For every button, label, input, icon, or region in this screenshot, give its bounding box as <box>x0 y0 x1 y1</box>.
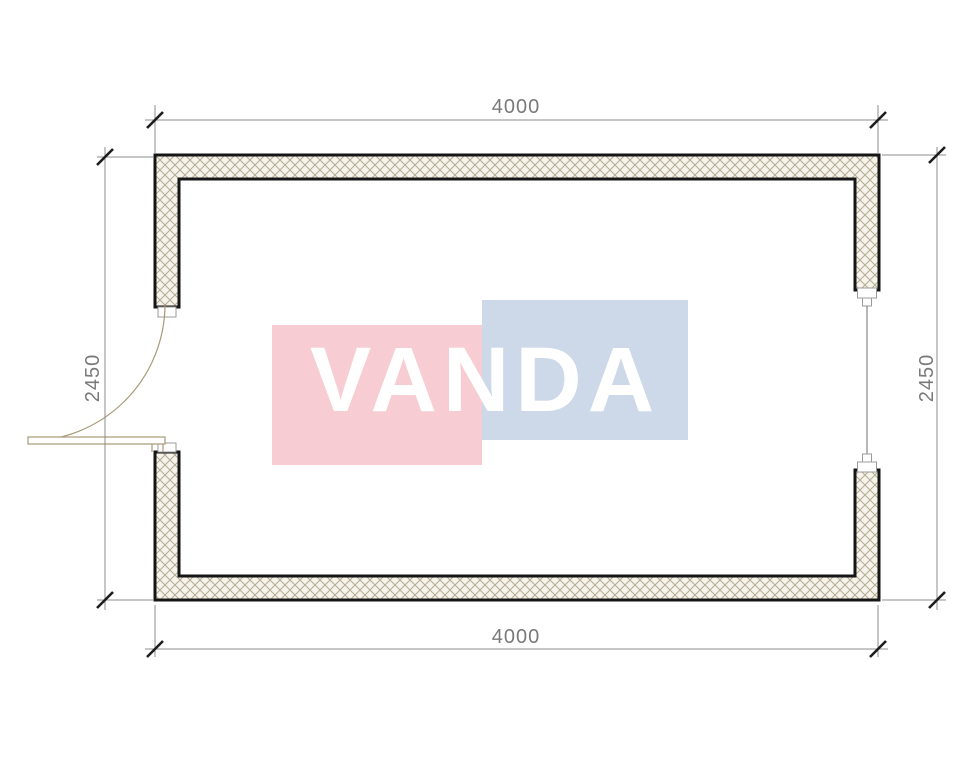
window-frame-top-outer <box>858 288 877 298</box>
door-leaf <box>28 437 165 444</box>
dimension-left-label: 2450 <box>82 354 104 403</box>
door-jamb-top <box>158 307 176 317</box>
dimension-right: 2450 <box>882 147 946 610</box>
dimension-bottom: 4000 <box>145 605 888 657</box>
dimension-right-label: 2450 <box>916 354 938 403</box>
window-frame-top-inner <box>863 298 872 306</box>
dimension-bottom-label: 4000 <box>492 626 541 648</box>
window <box>858 288 877 472</box>
dimension-top-label: 4000 <box>492 96 541 118</box>
wall-lower <box>155 452 879 600</box>
wall-upper <box>155 155 879 307</box>
drawing-canvas: VANDA <box>0 0 960 768</box>
dimension-top: 4000 <box>145 96 888 154</box>
floor-plan: 4000 4000 2450 2450 <box>0 0 960 768</box>
window-frame-bottom-outer <box>858 462 877 472</box>
window-frame-bottom-inner <box>863 454 872 462</box>
